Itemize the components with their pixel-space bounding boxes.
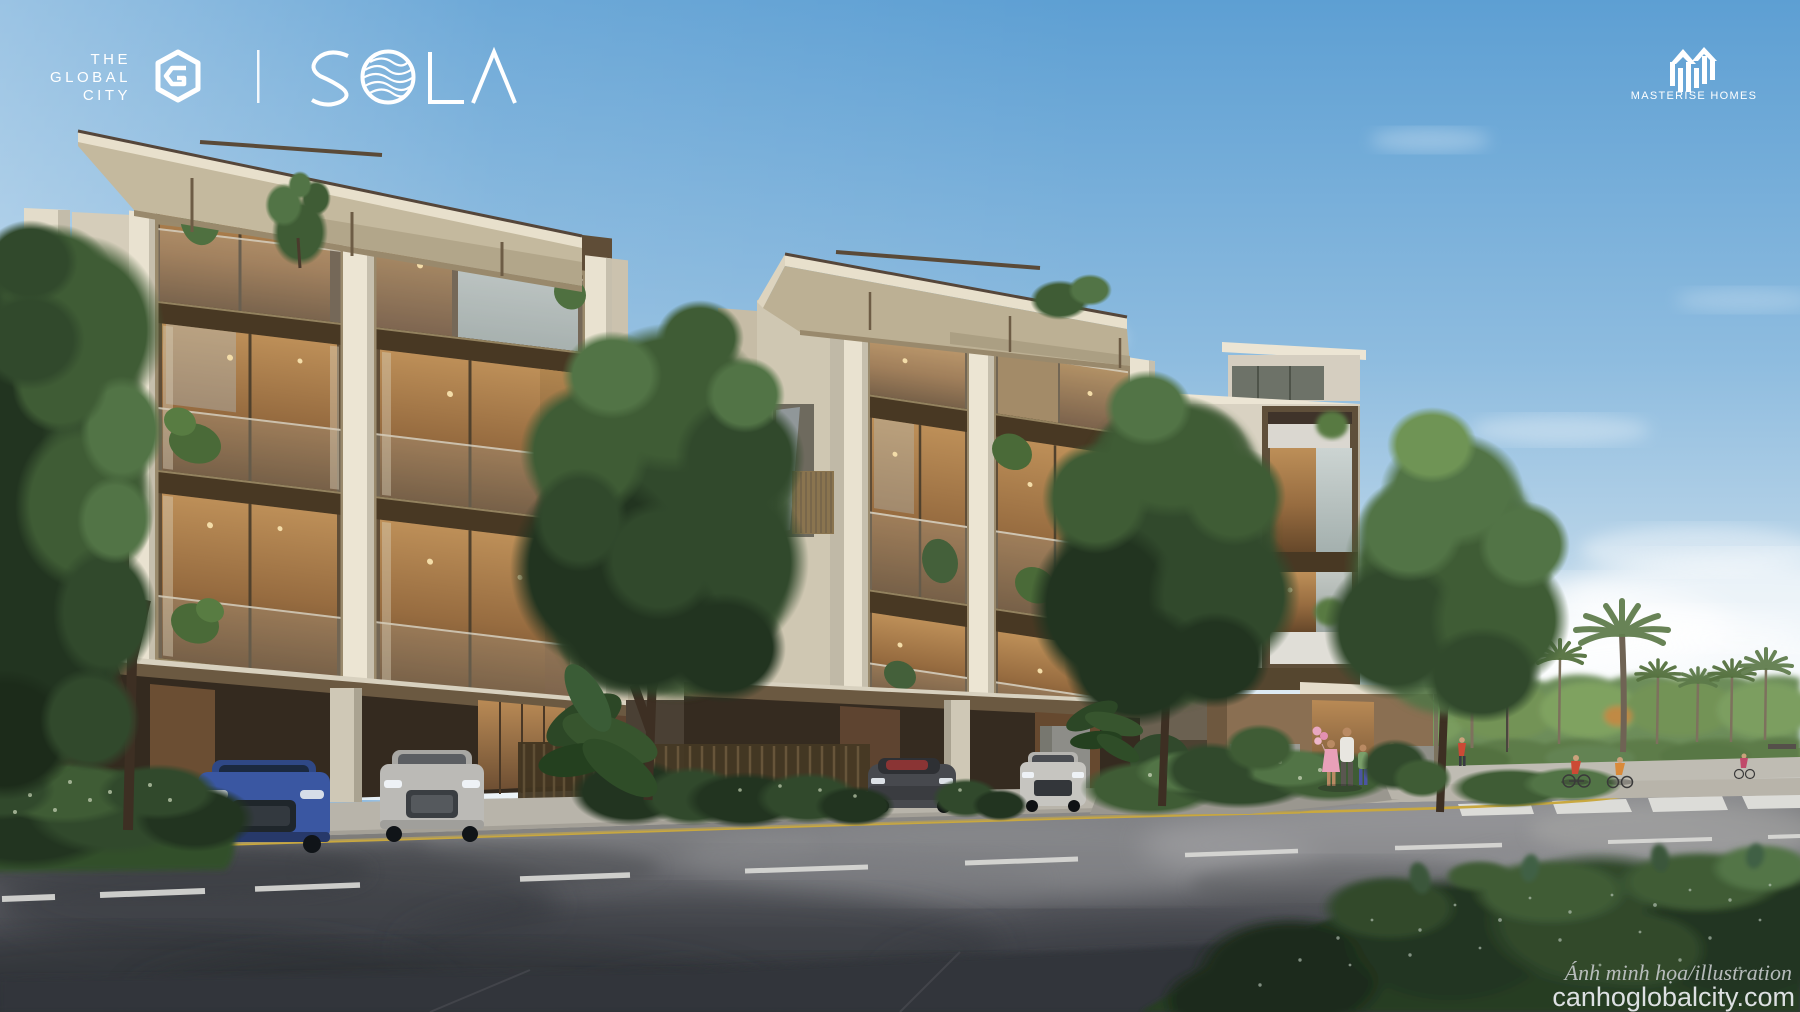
- svg-text:GLOBAL: GLOBAL: [50, 69, 131, 86]
- svg-text:THE: THE: [91, 51, 132, 68]
- svg-text:MASTERISE HOMES: MASTERISE HOMES: [1631, 90, 1757, 102]
- svg-text:canhoglobalcity.com: canhoglobalcity.com: [1552, 982, 1795, 1012]
- svg-text:CITY: CITY: [83, 87, 131, 104]
